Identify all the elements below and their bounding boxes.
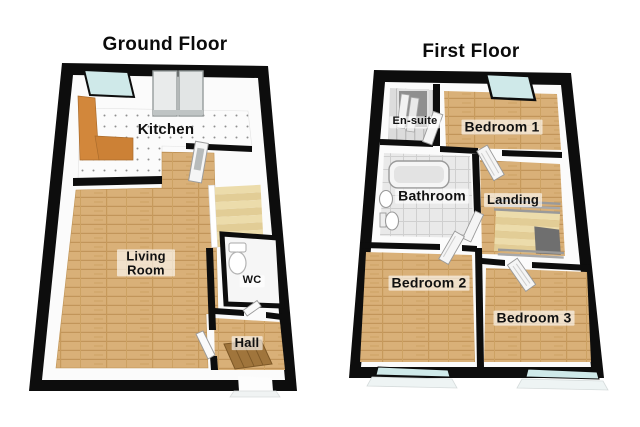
room-label-hall: Hall	[232, 336, 263, 350]
bathtub	[389, 161, 449, 188]
room-label-ensuite: En-suite	[390, 116, 441, 128]
room-label-kitchen: Kitchen	[135, 122, 197, 138]
bedroom3-window	[517, 369, 608, 390]
room-label-bedroom2: Bedroom 2	[389, 276, 470, 291]
floorplan-drawing	[0, 0, 640, 427]
front-door-sill	[230, 391, 280, 397]
toilet	[380, 212, 399, 230]
room-label-landing: Landing	[484, 193, 542, 207]
first-floor-title: First Floor	[422, 41, 519, 63]
room-label-bedroom1: Bedroom 1	[462, 120, 543, 135]
bedroom2-floor	[360, 252, 475, 362]
room-label-wc: WC	[240, 275, 265, 287]
sink	[380, 191, 393, 208]
wall	[462, 245, 477, 252]
room-label-bedroom3: Bedroom 3	[494, 311, 575, 326]
wc-room	[222, 234, 282, 306]
ground-floor-title: Ground Floor	[103, 34, 228, 56]
bay-window-glass	[486, 74, 535, 100]
room-label-living-room: Living Room	[117, 249, 175, 276]
floorplan-canvas: Ground Floor First Floor Kitchen Living …	[0, 0, 640, 427]
room-label-bathroom: Bathroom	[395, 189, 469, 204]
front-door-opening	[238, 376, 273, 391]
wall	[210, 356, 218, 370]
toilet	[229, 243, 246, 274]
window-glass	[84, 70, 134, 97]
